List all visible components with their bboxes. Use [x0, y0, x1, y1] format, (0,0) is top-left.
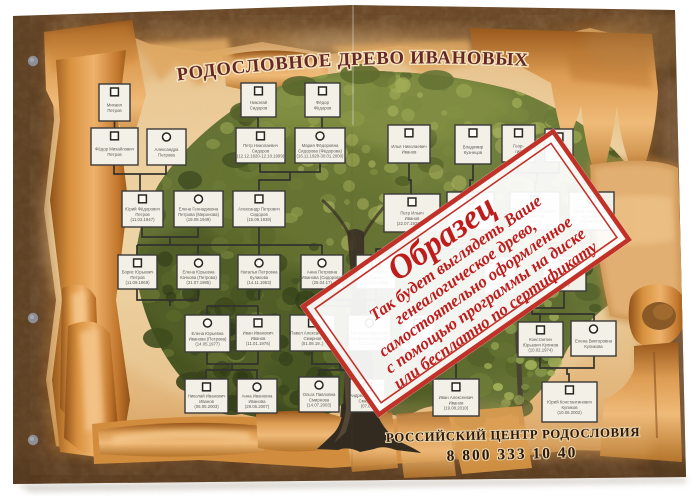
svg-text:Анна Ивановна: Анна Ивановна — [242, 393, 273, 398]
svg-text:Сидоров: Сидоров — [250, 212, 268, 217]
svg-text:Константин: Константин — [529, 337, 552, 342]
svg-text:(14.05.1977): (14.05.1977) — [195, 342, 220, 347]
svg-text:Ольга Павловна: Ольга Павловна — [303, 392, 336, 397]
svg-text:Иванов: Иванов — [402, 150, 417, 155]
svg-text:Юрьевич Куликов: Юрьевич Куликов — [523, 342, 559, 347]
svg-text:(16.11.1920-30.01.2000): (16.11.1920-30.01.2000) — [297, 154, 345, 159]
svg-text:Иван Иванович: Иван Иванович — [243, 330, 274, 335]
svg-text:(15.09.1939): (15.09.1939) — [247, 217, 272, 222]
svg-text:(19.08.1949): (19.08.1949) — [186, 217, 211, 222]
svg-text:(06.05.2003): (06.05.2003) — [194, 404, 219, 409]
svg-text:Михаил: Михаил — [107, 103, 123, 108]
svg-text:(10.06.2002): (10.06.2002) — [557, 410, 582, 415]
svg-text:Елена Юрьевна: Елена Юрьевна — [182, 269, 215, 274]
svg-text:Александр Петрович: Александр Петрович — [238, 206, 280, 211]
svg-text:(12.12.1920-12.10.1999): (12.12.1920-12.10.1999) — [237, 154, 285, 159]
svg-text:Наталья Петровна: Наталья Петровна — [240, 269, 278, 274]
svg-text:Петров: Петров — [135, 212, 150, 217]
svg-text:Фёдор: Фёдор — [316, 100, 330, 105]
svg-text:Мария Фёдоровна: Мария Фёдоровна — [302, 143, 339, 148]
svg-text:(19.08.2010): (19.08.2010) — [444, 406, 469, 411]
svg-text:(11.02.1947): (11.02.1947) — [130, 217, 155, 222]
svg-text:Николай: Николай — [250, 100, 268, 105]
svg-text:Петров: Петров — [107, 152, 122, 157]
svg-text:Фёдор Михайлович: Фёдор Михайлович — [95, 147, 134, 152]
svg-text:Иванов: Иванов — [405, 216, 420, 221]
svg-text:Иванова (Сидорова): Иванова (Сидорова) — [302, 275, 344, 280]
svg-text:Борис Юрьевич: Борис Юрьевич — [122, 269, 154, 274]
svg-text:Кузнецов: Кузнецов — [464, 150, 483, 155]
svg-text:Петр Ильич: Петр Ильич — [400, 210, 423, 215]
svg-text:(31.07.1985): (31.07.1985) — [186, 280, 211, 285]
svg-text:(29.06.2007): (29.06.2007) — [245, 404, 270, 409]
svg-text:Куликова: Куликова — [584, 344, 603, 349]
svg-text:(11.09.1969): (11.09.1969) — [125, 280, 150, 285]
svg-text:Иванова (Петрова): Иванова (Петрова) — [189, 336, 227, 341]
svg-text:Иван Алексеевич: Иван Алексеевич — [439, 395, 474, 400]
svg-text:Петр Николаевич: Петр Николаевич — [243, 143, 278, 148]
svg-text:Илья Николаевич: Илья Николаевич — [391, 144, 426, 149]
svg-text:Иванов: Иванов — [449, 400, 464, 405]
svg-text:(14.07.2003): (14.07.2003) — [307, 403, 332, 408]
svg-text:(14.11.1963): (14.11.1963) — [247, 280, 272, 285]
svg-text:Анна Петровна: Анна Петровна — [307, 269, 338, 274]
svg-text:Владимир: Владимир — [463, 145, 484, 150]
svg-text:Куликов: Куликов — [561, 405, 578, 410]
svg-text:Елена Геннадиевна: Елена Геннадиевна — [179, 206, 219, 211]
svg-text:(25.04.1?): (25.04.1?) — [312, 280, 332, 285]
svg-text:(10.02.1974): (10.02.1974) — [528, 348, 553, 353]
svg-text:Иванов: Иванов — [199, 399, 214, 404]
svg-text:Юрий Фёдорович: Юрий Фёдорович — [125, 206, 160, 211]
svg-text:Петрова: Петрова — [158, 153, 175, 158]
svg-text:Смирнова: Смирнова — [309, 397, 330, 402]
svg-text:Смирнов: Смирнов — [304, 336, 323, 341]
svg-text:Николай Иванович: Николай Иванович — [188, 393, 226, 398]
svg-text:Елена Юрьевна: Елена Юрьевна — [191, 331, 224, 336]
svg-text:Петров: Петров — [107, 108, 122, 113]
svg-text:Александра: Александра — [155, 147, 179, 152]
svg-text:Иванов: Иванов — [251, 336, 266, 341]
svg-text:Юрий Константинович: Юрий Константинович — [547, 399, 592, 404]
svg-text:Качкова (Петрова): Качкова (Петрова) — [180, 275, 217, 280]
svg-text:Куликова: Куликова — [250, 275, 269, 280]
svg-text:Сидоров: Сидоров — [252, 148, 270, 153]
svg-text:Сидоров: Сидоров — [250, 106, 268, 111]
svg-text:Сидорова (Фёдорова): Сидорова (Фёдорова) — [298, 148, 342, 153]
svg-text:Петров: Петров — [130, 275, 145, 280]
svg-text:8 800 333 10 40: 8 800 333 10 40 — [446, 444, 577, 464]
svg-text:Иванова: Иванова — [248, 399, 266, 404]
svg-text:Фёдоров: Фёдоров — [314, 106, 332, 111]
svg-text:Геор-: Геор- — [513, 144, 524, 149]
svg-text:Елена Викторовна: Елена Викторовна — [575, 339, 613, 344]
svg-text:Петрова (Миронова): Петрова (Миронова) — [178, 212, 219, 217]
svg-text:(11.01.1976): (11.01.1976) — [246, 341, 271, 346]
svg-text:(01.08.19..): (01.08.19..) — [302, 341, 325, 346]
